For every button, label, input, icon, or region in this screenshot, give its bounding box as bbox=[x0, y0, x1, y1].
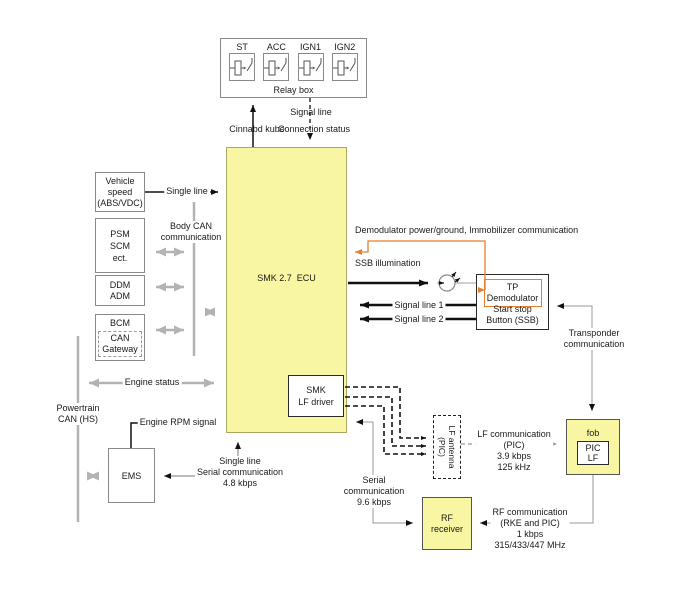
single-line-label: Single line bbox=[164, 186, 210, 197]
relay-st: ST bbox=[229, 41, 255, 81]
illumination-lamp-icon bbox=[439, 272, 460, 291]
serial-96-line2: communication bbox=[344, 486, 405, 497]
serial-48-line2: Serial communication bbox=[197, 467, 283, 478]
rf-comm-line1: RF communication bbox=[492, 507, 567, 518]
smk-lf-driver-line2: LF driver bbox=[298, 396, 334, 408]
powertrain-line1: Powertrain bbox=[56, 403, 99, 414]
relay-symbol-icon bbox=[298, 53, 324, 81]
transponder-line1: Transponder bbox=[564, 328, 625, 339]
ssb-line1: Start stop bbox=[477, 304, 548, 315]
relay-box: ST ACC IGN1 bbox=[220, 38, 367, 98]
engine-status-label: Engine status bbox=[123, 377, 182, 388]
rf-comm-line4: 315/433/447 MHz bbox=[492, 540, 567, 551]
powertrain-line2: CAN (HS) bbox=[56, 414, 99, 425]
vehicle-speed-line2: speed bbox=[108, 187, 133, 198]
relay-box-title: Relay box bbox=[221, 84, 366, 96]
connection-status-label: Connection status bbox=[278, 124, 350, 135]
engine-rpm-label: Engine RPM signal bbox=[138, 417, 219, 428]
psm-line3: ect. bbox=[113, 252, 128, 264]
tp-demodulator-box: TP Demodulator bbox=[484, 279, 542, 307]
body-can-line1: Body CAN bbox=[161, 221, 222, 232]
lf-communication-label: LF communication (PIC) 3.9 kbps 125 kHz bbox=[475, 429, 553, 473]
pic-lf-box: PIC LF bbox=[577, 441, 609, 465]
lf-comm-line3: 3.9 kbps bbox=[477, 451, 551, 462]
relay-symbol-icon bbox=[263, 53, 289, 81]
tp-line2: Demodulator bbox=[485, 293, 541, 304]
lf-comm-line4: 125 kHz bbox=[477, 462, 551, 473]
command-line-label: Cinnabd kube bbox=[229, 124, 285, 135]
rf-comm-line3: 1 kbps bbox=[492, 529, 567, 540]
lf-antenna-label: LF antenna (PIC) bbox=[437, 425, 457, 468]
vehicle-speed-line3: (ABS/VDC) bbox=[97, 198, 143, 209]
serial-96-line1: Serial bbox=[344, 475, 405, 486]
signal-line-1-label: Signal line 1 bbox=[392, 300, 445, 311]
relay-ign2-label: IGN2 bbox=[334, 41, 355, 53]
relay-acc-label: ACC bbox=[267, 41, 286, 53]
relay-ign1-label: IGN1 bbox=[300, 41, 321, 53]
smk-ecu-label: SMK 2.7 ECU bbox=[227, 272, 346, 284]
body-can-line2: communication bbox=[161, 232, 222, 243]
relay-cells: ST ACC IGN1 bbox=[221, 41, 366, 81]
powertrain-can-label: Powertrain CAN (HS) bbox=[54, 403, 101, 425]
ssb-line2: Button (SSB) bbox=[477, 315, 548, 326]
bcm-label: BCM bbox=[110, 317, 130, 329]
serial-96-label: Serial communication 9.6 kbps bbox=[342, 475, 407, 508]
transponder-line2: communication bbox=[564, 339, 625, 350]
smk-system-block-diagram: ST ACC IGN1 bbox=[0, 0, 700, 601]
serial-48-label: Single line Serial communication 4.8 kbp… bbox=[195, 456, 285, 489]
can-gateway-line1: CAN bbox=[99, 333, 141, 344]
lf-antenna-line2: (PIC) bbox=[437, 425, 447, 468]
relay-symbol-icon bbox=[229, 53, 255, 81]
relay-st-label: ST bbox=[236, 41, 248, 53]
psm-line2: SCM bbox=[110, 240, 130, 252]
signal-line-top-label: Signal line bbox=[290, 107, 332, 118]
can-gateway-line2: Gateway bbox=[99, 344, 141, 355]
smk-lf-driver-box: SMK LF driver bbox=[288, 375, 344, 417]
body-can-label: Body CAN communication bbox=[159, 221, 224, 243]
rf-receiver-line2: receiver bbox=[431, 524, 463, 535]
fob-box: fob PIC LF bbox=[566, 419, 620, 475]
bcm-box: BCM CAN Gateway bbox=[95, 314, 145, 361]
rf-communication-label: RF communication (RKE and PIC) 1 kbps 31… bbox=[490, 507, 569, 551]
vehicle-speed-line1: Vehicle bbox=[105, 176, 134, 187]
lf-antenna-box: LF antenna (PIC) bbox=[433, 415, 461, 479]
can-gateway-box: CAN Gateway bbox=[98, 331, 142, 357]
ddm-line2: ADM bbox=[110, 291, 130, 302]
relay-symbol-icon bbox=[332, 53, 358, 81]
pic-line2: LF bbox=[578, 453, 608, 463]
serial-96-line3: 9.6 kbps bbox=[344, 497, 405, 508]
relay-acc: ACC bbox=[263, 41, 289, 81]
ems-label: EMS bbox=[122, 470, 142, 482]
ddm-adm-box: DDM ADM bbox=[95, 275, 145, 306]
psm-scm-box: PSM SCM ect. bbox=[95, 218, 145, 273]
signal-line-2-label: Signal line 2 bbox=[392, 314, 445, 325]
demodulator-power-label: Demodulator power/ground, Immobilizer co… bbox=[355, 225, 578, 236]
lf-antenna-line1: LF antenna bbox=[447, 425, 457, 468]
serial-48-line1: Single line bbox=[197, 456, 283, 467]
ssb-illumination-label: SSB illumination bbox=[355, 258, 421, 269]
fob-label: fob bbox=[587, 427, 600, 439]
pic-line1: PIC bbox=[578, 443, 608, 453]
psm-line1: PSM bbox=[110, 228, 130, 240]
lf-comm-line2: (PIC) bbox=[477, 440, 551, 451]
transponder-label: Transponder communication bbox=[562, 328, 627, 350]
relay-ign1: IGN1 bbox=[298, 41, 324, 81]
relay-ign2: IGN2 bbox=[332, 41, 358, 81]
ddm-line1: DDM bbox=[110, 280, 131, 291]
vehicle-speed-box: Vehicle speed (ABS/VDC) bbox=[95, 172, 145, 212]
serial-48-line3: 4.8 kbps bbox=[197, 478, 283, 489]
smk-lf-driver-line1: SMK bbox=[306, 384, 326, 396]
start-stop-button-box: TP Demodulator Start stop Button (SSB) bbox=[476, 274, 549, 330]
rf-receiver-box: RF receiver bbox=[422, 497, 472, 550]
rf-comm-line2: (RKE and PIC) bbox=[492, 518, 567, 529]
rf-receiver-line1: RF bbox=[441, 513, 453, 524]
lf-comm-line1: LF communication bbox=[477, 429, 551, 440]
ssb-label: Start stop Button (SSB) bbox=[477, 304, 548, 326]
tp-line1: TP bbox=[485, 282, 541, 293]
ems-box: EMS bbox=[108, 448, 155, 503]
